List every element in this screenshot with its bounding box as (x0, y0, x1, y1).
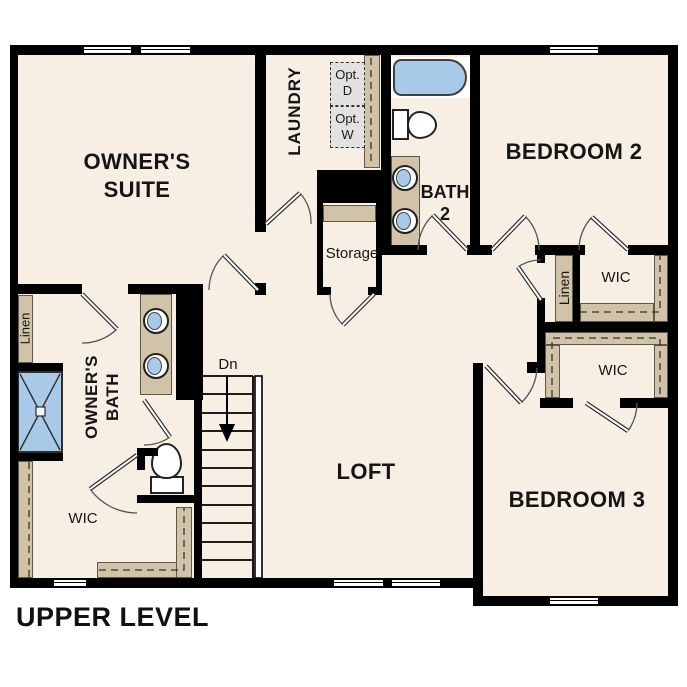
bath2-line1: BATH (415, 181, 475, 203)
room-label-laundry: LAUNDRY (285, 51, 307, 171)
wall-segment (573, 255, 580, 332)
wall-segment (18, 284, 82, 294)
owners-suite-line2: SUITE (47, 176, 227, 204)
room-label-owners-suite: OWNER'S SUITE (47, 148, 227, 204)
wall-segment (255, 55, 266, 232)
stair-direction-label: Dn (212, 356, 244, 373)
wall-segment (527, 362, 537, 373)
room-label-owners-bath: OWNER'S BATH (81, 337, 125, 457)
wall-segment (255, 283, 266, 295)
wic-owner-shelf-left (18, 461, 33, 578)
opt-dryer-line1: Opt. (335, 67, 360, 82)
plan-title: UPPER LEVEL (16, 602, 209, 633)
owners-bath-line2: BATH (102, 337, 123, 457)
opt-dryer-line2: D (343, 83, 352, 98)
room-label-wic-bedroom2: WIC (586, 269, 646, 286)
room-label-loft: LOFT (326, 458, 406, 486)
wall-segment (10, 363, 63, 371)
wall-segment (381, 50, 391, 248)
owners-bath-line1: OWNER'S (81, 337, 102, 457)
wall-segment (368, 287, 382, 295)
floor-bedroom3-extension (483, 578, 668, 596)
owners-suite-line1: OWNER'S (47, 148, 227, 176)
room-label-wic-bedroom3: WIC (583, 362, 643, 379)
wall-segment (194, 400, 202, 578)
wall-segment (628, 245, 668, 255)
window (139, 45, 192, 55)
wall-segment (317, 287, 331, 295)
room-label-bath-2: BATH 2 (415, 181, 475, 225)
floor-plan: Opt. D Opt. W (0, 0, 687, 687)
wall-segment (537, 255, 545, 263)
room-label-wic-owner: WIC (53, 510, 113, 527)
shower-icon (17, 371, 63, 453)
room-label-bedroom-2: BEDROOM 2 (484, 138, 664, 166)
window (82, 45, 133, 55)
window (332, 578, 385, 588)
room-label-bedroom-3: BEDROOM 3 (487, 486, 667, 514)
wic-bedroom2-shelf-bottom (580, 303, 654, 322)
storage-shelf (323, 205, 376, 222)
sink-icon-owners-2 (143, 353, 169, 379)
wall-segment (537, 322, 678, 332)
bathtub-icon (393, 59, 467, 96)
wall-segment (473, 363, 483, 606)
wall-segment (137, 495, 201, 503)
room-label-linen-right: Linen (556, 258, 572, 318)
wall-segment (540, 398, 573, 408)
wall-segment (467, 245, 492, 255)
wall-segment (10, 453, 63, 461)
window (52, 578, 88, 588)
wall-segment (176, 284, 203, 400)
wall-segment (535, 245, 585, 255)
window (548, 45, 600, 55)
optional-dryer-box: Opt. D (330, 62, 365, 106)
wall-segment (128, 284, 178, 294)
wall-segment (137, 448, 158, 456)
room-label-storage: Storage (312, 245, 392, 262)
window (548, 596, 600, 606)
room-label-linen-left: Linen (18, 301, 33, 357)
wall-segment (620, 398, 678, 408)
wic-bedroom2-shelf-right (654, 255, 668, 322)
bath2-line2: 2 (415, 203, 475, 225)
wic-owner-shelf-vertical (176, 507, 192, 578)
wall-segment (537, 332, 545, 373)
opt-washer-line1: Opt. (335, 111, 360, 126)
wic-owner-shelf-bottom (97, 562, 180, 578)
wall-segment (317, 170, 382, 203)
optional-washer-box: Opt. W (330, 106, 365, 148)
wic-bedroom3-shelf-top (545, 332, 668, 345)
opt-washer-line2: W (341, 127, 353, 142)
sink-icon-owners-1 (143, 308, 169, 334)
laundry-counter (364, 55, 380, 168)
wic-bedroom3-shelf-left (545, 345, 560, 398)
wic-bedroom3-shelf-right (654, 345, 668, 398)
window (390, 578, 442, 588)
